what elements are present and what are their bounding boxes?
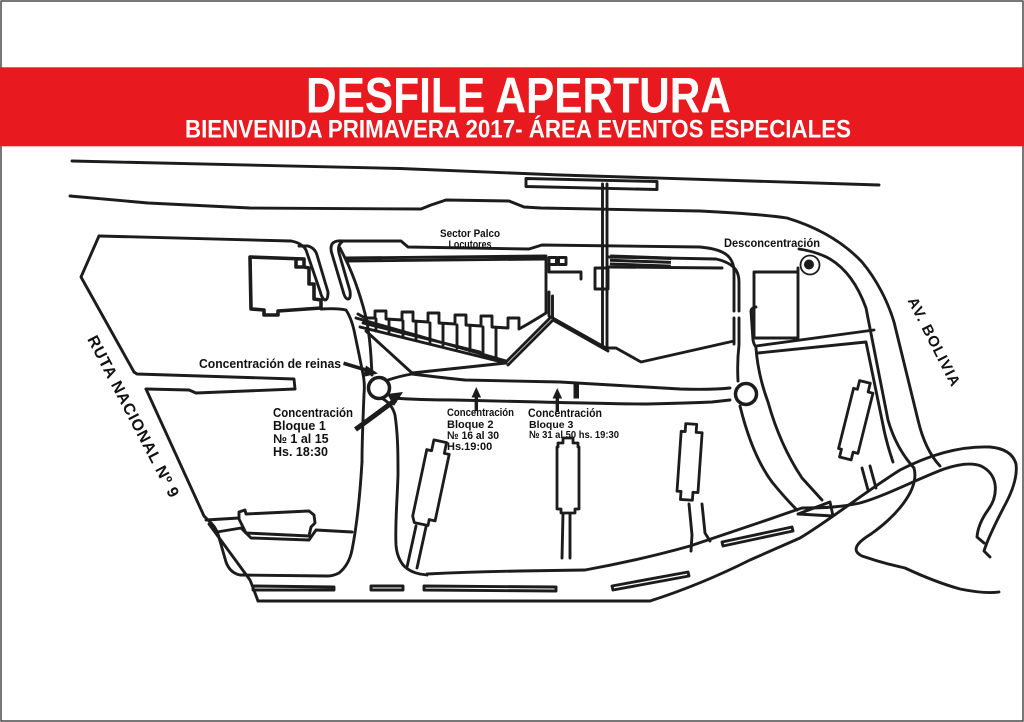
svg-text:Concentración: Concentración <box>528 406 602 420</box>
svg-text:Concentración de reinas: Concentración de reinas <box>199 356 341 371</box>
svg-text:Concentración: Concentración <box>447 407 514 419</box>
svg-text:Locutores: Locutores <box>449 239 492 251</box>
svg-text:BIENVENIDA PRIMAVERA 2017- ÁRE: BIENVENIDA PRIMAVERA 2017- ÁREA EVENTOS … <box>185 114 851 143</box>
svg-text:Hs. 18:30: Hs. 18:30 <box>273 445 328 459</box>
svg-text:Desconcentración: Desconcentración <box>724 238 820 250</box>
svg-text:Hs.19:00: Hs.19:00 <box>447 441 492 453</box>
svg-text:Bloque 1: Bloque 1 <box>273 419 326 433</box>
svg-text:№ 1 al 15: № 1 al 15 <box>273 432 329 446</box>
svg-text:Concentración: Concentración <box>273 406 353 420</box>
